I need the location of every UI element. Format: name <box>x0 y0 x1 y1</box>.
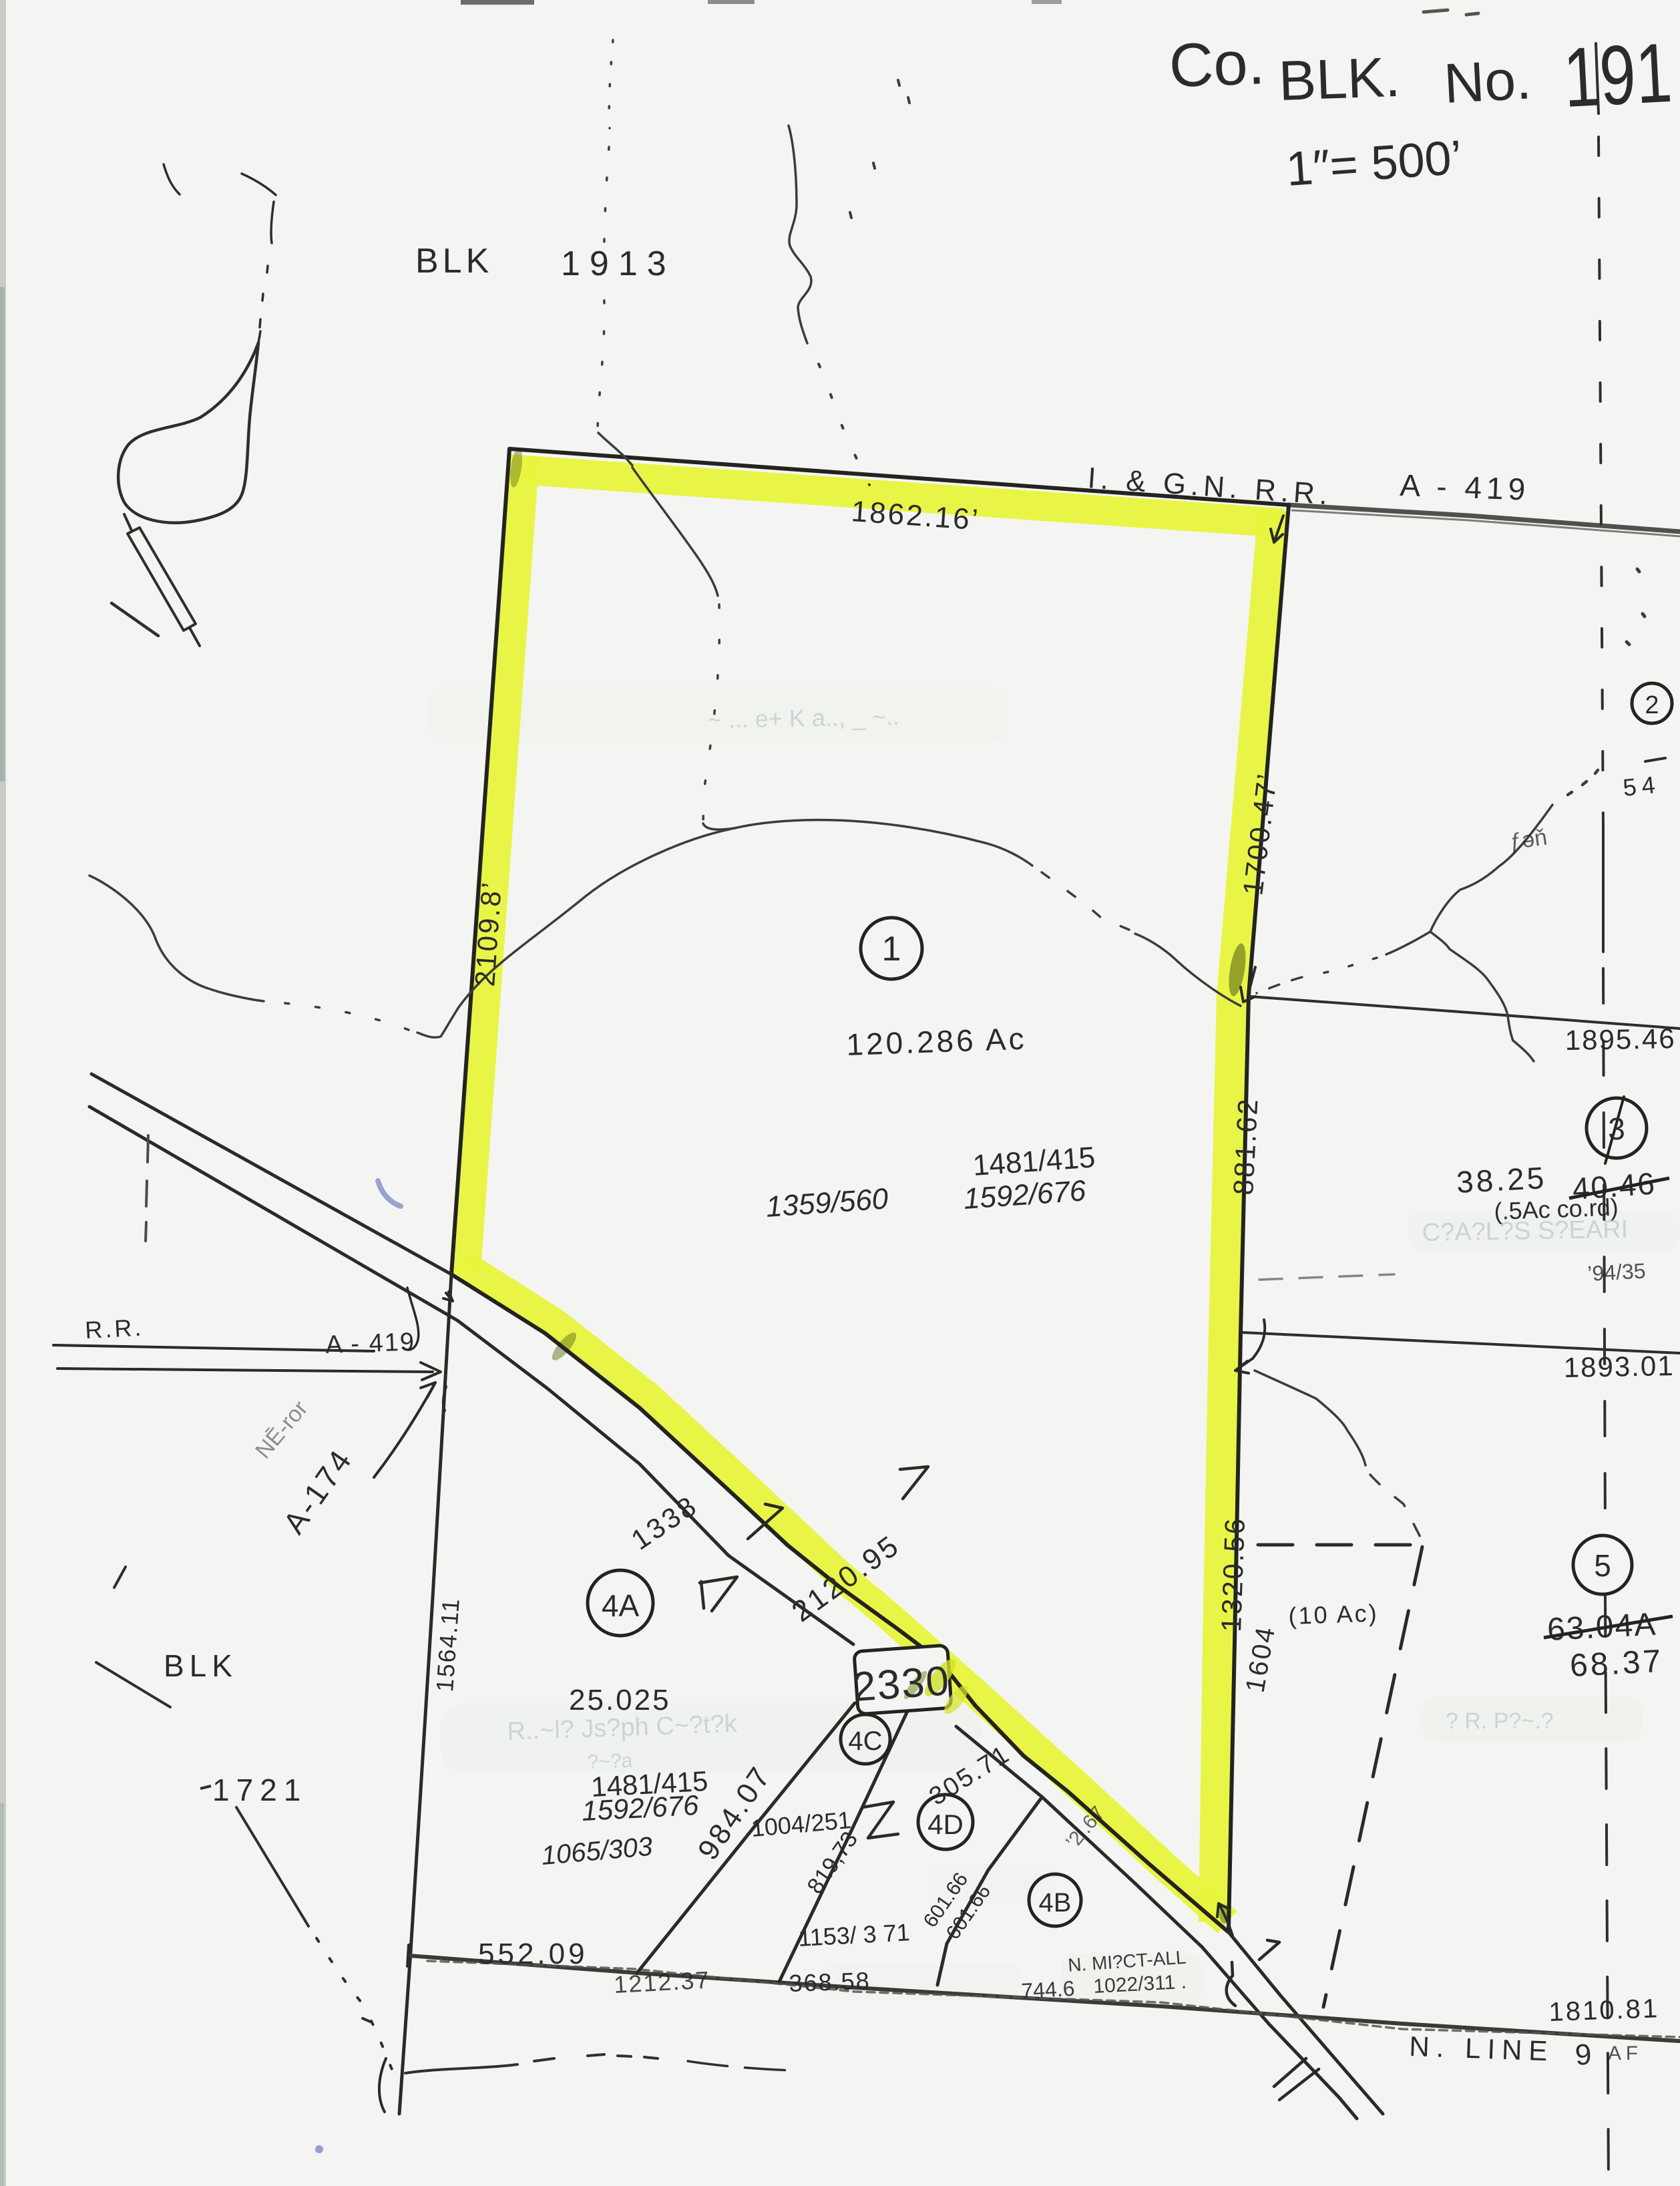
svg-text:? R. P?~.?: ? R. P?~.? <box>1446 1708 1554 1734</box>
svg-text:2330: 2330 <box>851 1658 952 1710</box>
svg-text:Co.: Co. <box>1168 29 1266 100</box>
svg-text:1721: 1721 <box>212 1773 307 1807</box>
svg-text:9: 9 <box>1574 2038 1593 2072</box>
svg-text:ƒəň: ƒəň <box>1508 824 1548 855</box>
svg-text:(.5Ac co.rd): (.5Ac co.rd) <box>1494 1194 1619 1225</box>
svg-text:54: 54 <box>1622 770 1662 801</box>
svg-text:2: 2 <box>1645 691 1659 719</box>
svg-text:1592/676: 1592/676 <box>581 1789 700 1827</box>
svg-text:38.25: 38.25 <box>1456 1160 1548 1200</box>
svg-text:N. LINE: N. LINE <box>1409 2030 1555 2067</box>
svg-text:744.6: 744.6 <box>1020 1976 1075 2003</box>
svg-text:No.: No. <box>1442 47 1532 115</box>
svg-text:1212.37: 1212.37 <box>613 1966 710 1998</box>
svg-text:(10 Ac): (10 Ac) <box>1288 1599 1379 1630</box>
svg-text:1913: 1913 <box>561 244 676 283</box>
svg-text:552.09: 552.09 <box>478 1938 588 1970</box>
svg-text:R.R.: R.R. <box>84 1313 144 1344</box>
svg-text:~ ... e+ K a.., _ ~..: ~ ... e+ K a.., _ ~.. <box>707 703 899 733</box>
svg-text:4A: 4A <box>602 1588 640 1623</box>
svg-text:1895.46: 1895.46 <box>1564 1023 1676 1056</box>
svg-text:A - 419: A - 419 <box>325 1328 416 1359</box>
svg-text:3: 3 <box>1608 1111 1625 1146</box>
svg-text:191: 191 <box>1561 25 1674 125</box>
svg-text:A - 419: A - 419 <box>1400 468 1530 507</box>
svg-text:368.58: 368.58 <box>789 1967 871 1997</box>
svg-text:25.025: 25.025 <box>569 1684 671 1716</box>
svg-text:1893.01: 1893.01 <box>1563 1350 1675 1383</box>
svg-text:BLK: BLK <box>415 242 493 281</box>
svg-text:1320.56: 1320.56 <box>1215 1516 1251 1632</box>
svg-text:4D: 4D <box>927 1809 964 1840</box>
svg-text:’94/35: ’94/35 <box>1587 1258 1646 1286</box>
svg-text:4B: 4B <box>1039 1888 1072 1918</box>
svg-text:68.37: 68.37 <box>1569 1644 1665 1684</box>
svg-text:A F: A F <box>1608 2042 1638 2064</box>
svg-text:BLK.: BLK. <box>1277 45 1401 112</box>
svg-text:1810.81: 1810.81 <box>1548 1994 1660 2027</box>
svg-text:881.62: 881.62 <box>1227 1097 1264 1196</box>
svg-text:5: 5 <box>1594 1548 1611 1583</box>
svg-text:1153/ 3 71: 1153/ 3 71 <box>797 1918 910 1952</box>
svg-text:BLK: BLK <box>164 1648 238 1683</box>
svg-text:120.286 Ac: 120.286 Ac <box>846 1021 1028 1062</box>
svg-text:1: 1 <box>882 930 901 968</box>
svg-text:4C: 4C <box>848 1726 882 1756</box>
